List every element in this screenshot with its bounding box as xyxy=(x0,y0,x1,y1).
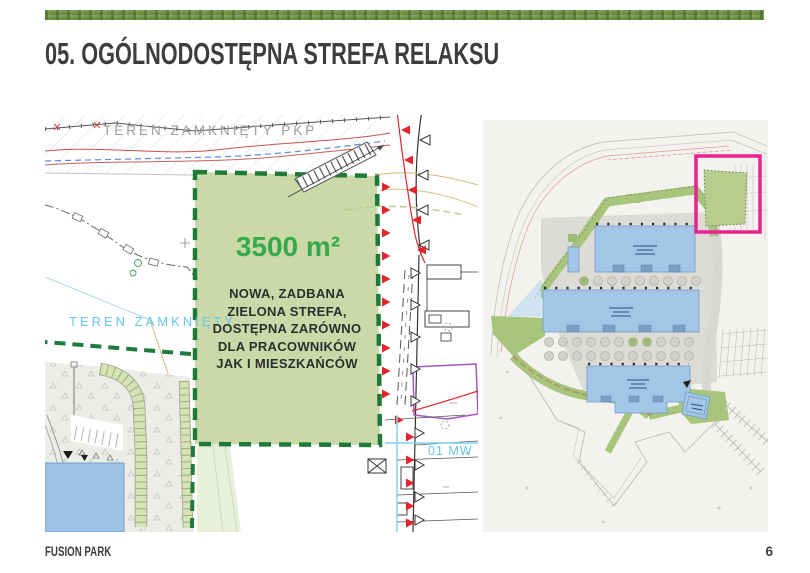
label-zone-01mw: 01 MW xyxy=(428,444,473,458)
relax-zone-description: NOWA, ZADBANA ZIELONA STREFA, DOSTĘPNA Z… xyxy=(185,285,389,373)
site-plan xyxy=(483,120,768,532)
accent-bar xyxy=(45,10,764,20)
footer-project-name: FUSION PARK xyxy=(45,544,111,559)
label-teren-zamkniety-pkp: TEREN ZAMKNIĘTY PKP xyxy=(103,123,317,138)
detail-map: TEREN ZAMKNIĘTY PKP TEREN ZAMKNIĘTY 01 M… xyxy=(45,115,478,532)
footer-page-number: 6 xyxy=(765,544,773,559)
slide: 05. OGÓLNODOSTĘPNA STREFA RELAKSU xyxy=(0,0,810,573)
site-plan-drawing xyxy=(483,120,768,532)
slide-title: 05. OGÓLNODOSTĘPNA STREFA RELAKSU xyxy=(45,36,499,72)
relax-zone-area-value: 3500 m² xyxy=(195,231,381,263)
existing-building-blue xyxy=(45,463,124,532)
